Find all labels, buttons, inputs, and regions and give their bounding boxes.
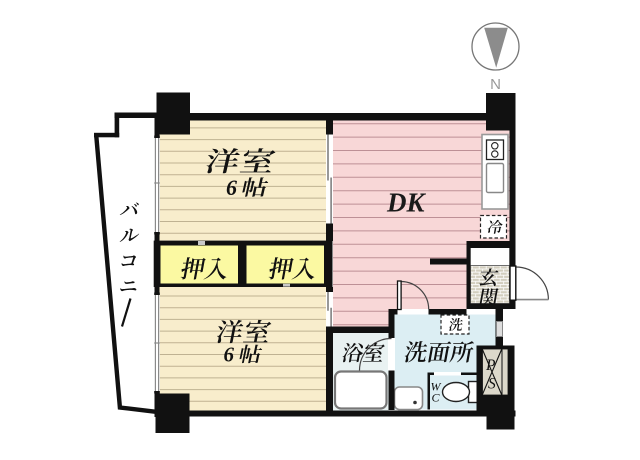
svg-text:DK: DK (386, 188, 426, 218)
svg-text:P: P (485, 357, 496, 374)
svg-text:N: N (490, 76, 501, 93)
svg-text:6: 6 (226, 175, 237, 200)
svg-text:6: 6 (224, 343, 235, 367)
svg-text:C: C (432, 391, 441, 405)
svg-text:S: S (488, 376, 496, 393)
